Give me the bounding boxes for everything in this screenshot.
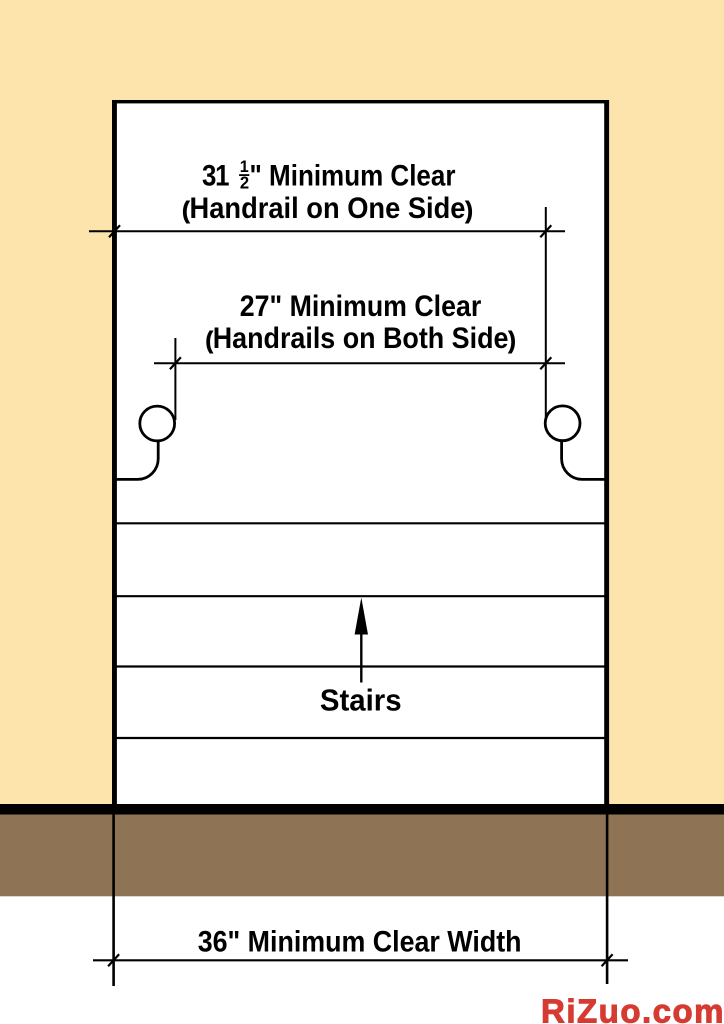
svg-text:31: 31 [202,159,229,192]
svg-text:2: 2 [240,173,249,192]
svg-text:" Minimum Clear: " Minimum Clear [250,159,456,192]
svg-text:36" Minimum Clear Width: 36" Minimum Clear Width [198,925,522,957]
svg-text:RiZuo.com: RiZuo.com [541,993,724,1024]
svg-text:(Handrail on One Side): (Handrail on One Side) [182,192,472,225]
svg-text:Stairs: Stairs [320,684,402,718]
svg-text:(Handrails on Both Side): (Handrails on Both Side) [206,321,516,354]
svg-text:27" Minimum Clear: 27" Minimum Clear [240,290,482,322]
